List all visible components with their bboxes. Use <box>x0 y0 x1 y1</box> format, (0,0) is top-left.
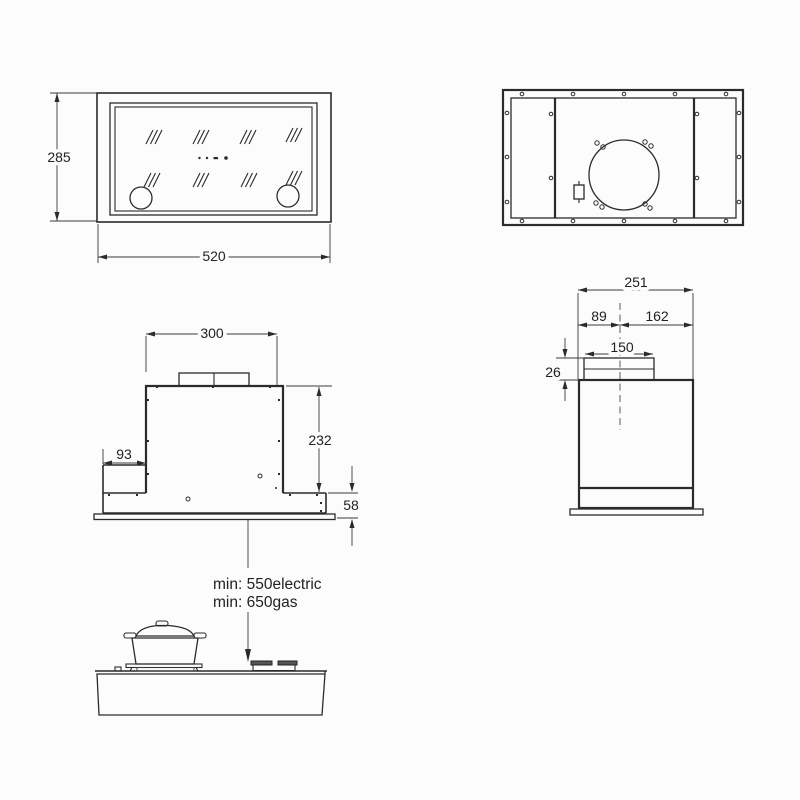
dim-label-step-width: 93 <box>116 446 132 462</box>
glass-hatch-marks <box>144 128 302 187</box>
pot <box>124 621 206 671</box>
dim-panel-height: 285 <box>47 93 97 221</box>
cooktop-clearance-view: min: 550electric min: 650gas <box>95 520 327 715</box>
counter-body <box>97 671 325 715</box>
mounting-flange-front <box>94 514 335 520</box>
dim-label-panel-height: 285 <box>47 149 71 165</box>
housing-inner-edge <box>511 98 736 218</box>
dim-body-height: 232 <box>286 386 358 493</box>
clearance-electric-text: min: 550electric <box>213 576 322 593</box>
fan-outlet-circle <box>589 140 659 210</box>
side-view: 251 89 162 150 26 <box>545 274 703 515</box>
front-elevation-view: 300 93 232 58 <box>94 325 359 546</box>
dim-label-body-height: 232 <box>308 432 332 448</box>
cable-connector <box>574 181 584 203</box>
dim-depth: 251 <box>578 274 693 379</box>
installation-drawing: 285 520 <box>0 0 800 800</box>
dim-step-width: 93 <box>103 446 146 466</box>
dim-label-plenum-height: 58 <box>343 497 359 513</box>
mounting-flange-side <box>570 509 703 515</box>
dim-label-collar-height: 26 <box>545 364 561 380</box>
dim-duct-width: 150 <box>585 339 653 357</box>
pot-body <box>132 638 198 664</box>
clearance-gas-text: min: 650gas <box>213 594 298 611</box>
dim-label-body-width: 300 <box>200 325 224 341</box>
pot-lid <box>136 626 194 637</box>
housing-outer-edge <box>503 90 743 225</box>
pot-handle-left <box>124 633 136 638</box>
dim-panel-width: 520 <box>98 224 330 264</box>
dim-label-duct-width: 150 <box>610 339 634 355</box>
right-burner <box>251 661 297 671</box>
screw-holes <box>505 92 741 223</box>
dim-duct-offsets: 89 162 <box>578 308 693 328</box>
front-panel-view: 285 520 <box>47 93 331 264</box>
lamp-left <box>130 187 152 209</box>
hood-body-front <box>146 386 283 493</box>
dim-plenum-height: 58 <box>337 466 359 546</box>
left-step <box>103 465 146 513</box>
control-buttons <box>198 156 228 160</box>
lamp-right <box>277 185 299 207</box>
dim-label-depth: 251 <box>624 274 648 290</box>
dim-body-width: 300 <box>146 325 277 385</box>
fan-mount-holes <box>594 140 653 210</box>
pot-handle-right <box>194 633 206 638</box>
dim-label-panel-width: 520 <box>202 248 226 264</box>
top-view <box>503 90 743 225</box>
dim-label-duct-offset-front: 89 <box>591 308 607 324</box>
dim-label-duct-offset-rear: 162 <box>645 308 669 324</box>
drawing-svg: 285 520 <box>0 0 800 800</box>
